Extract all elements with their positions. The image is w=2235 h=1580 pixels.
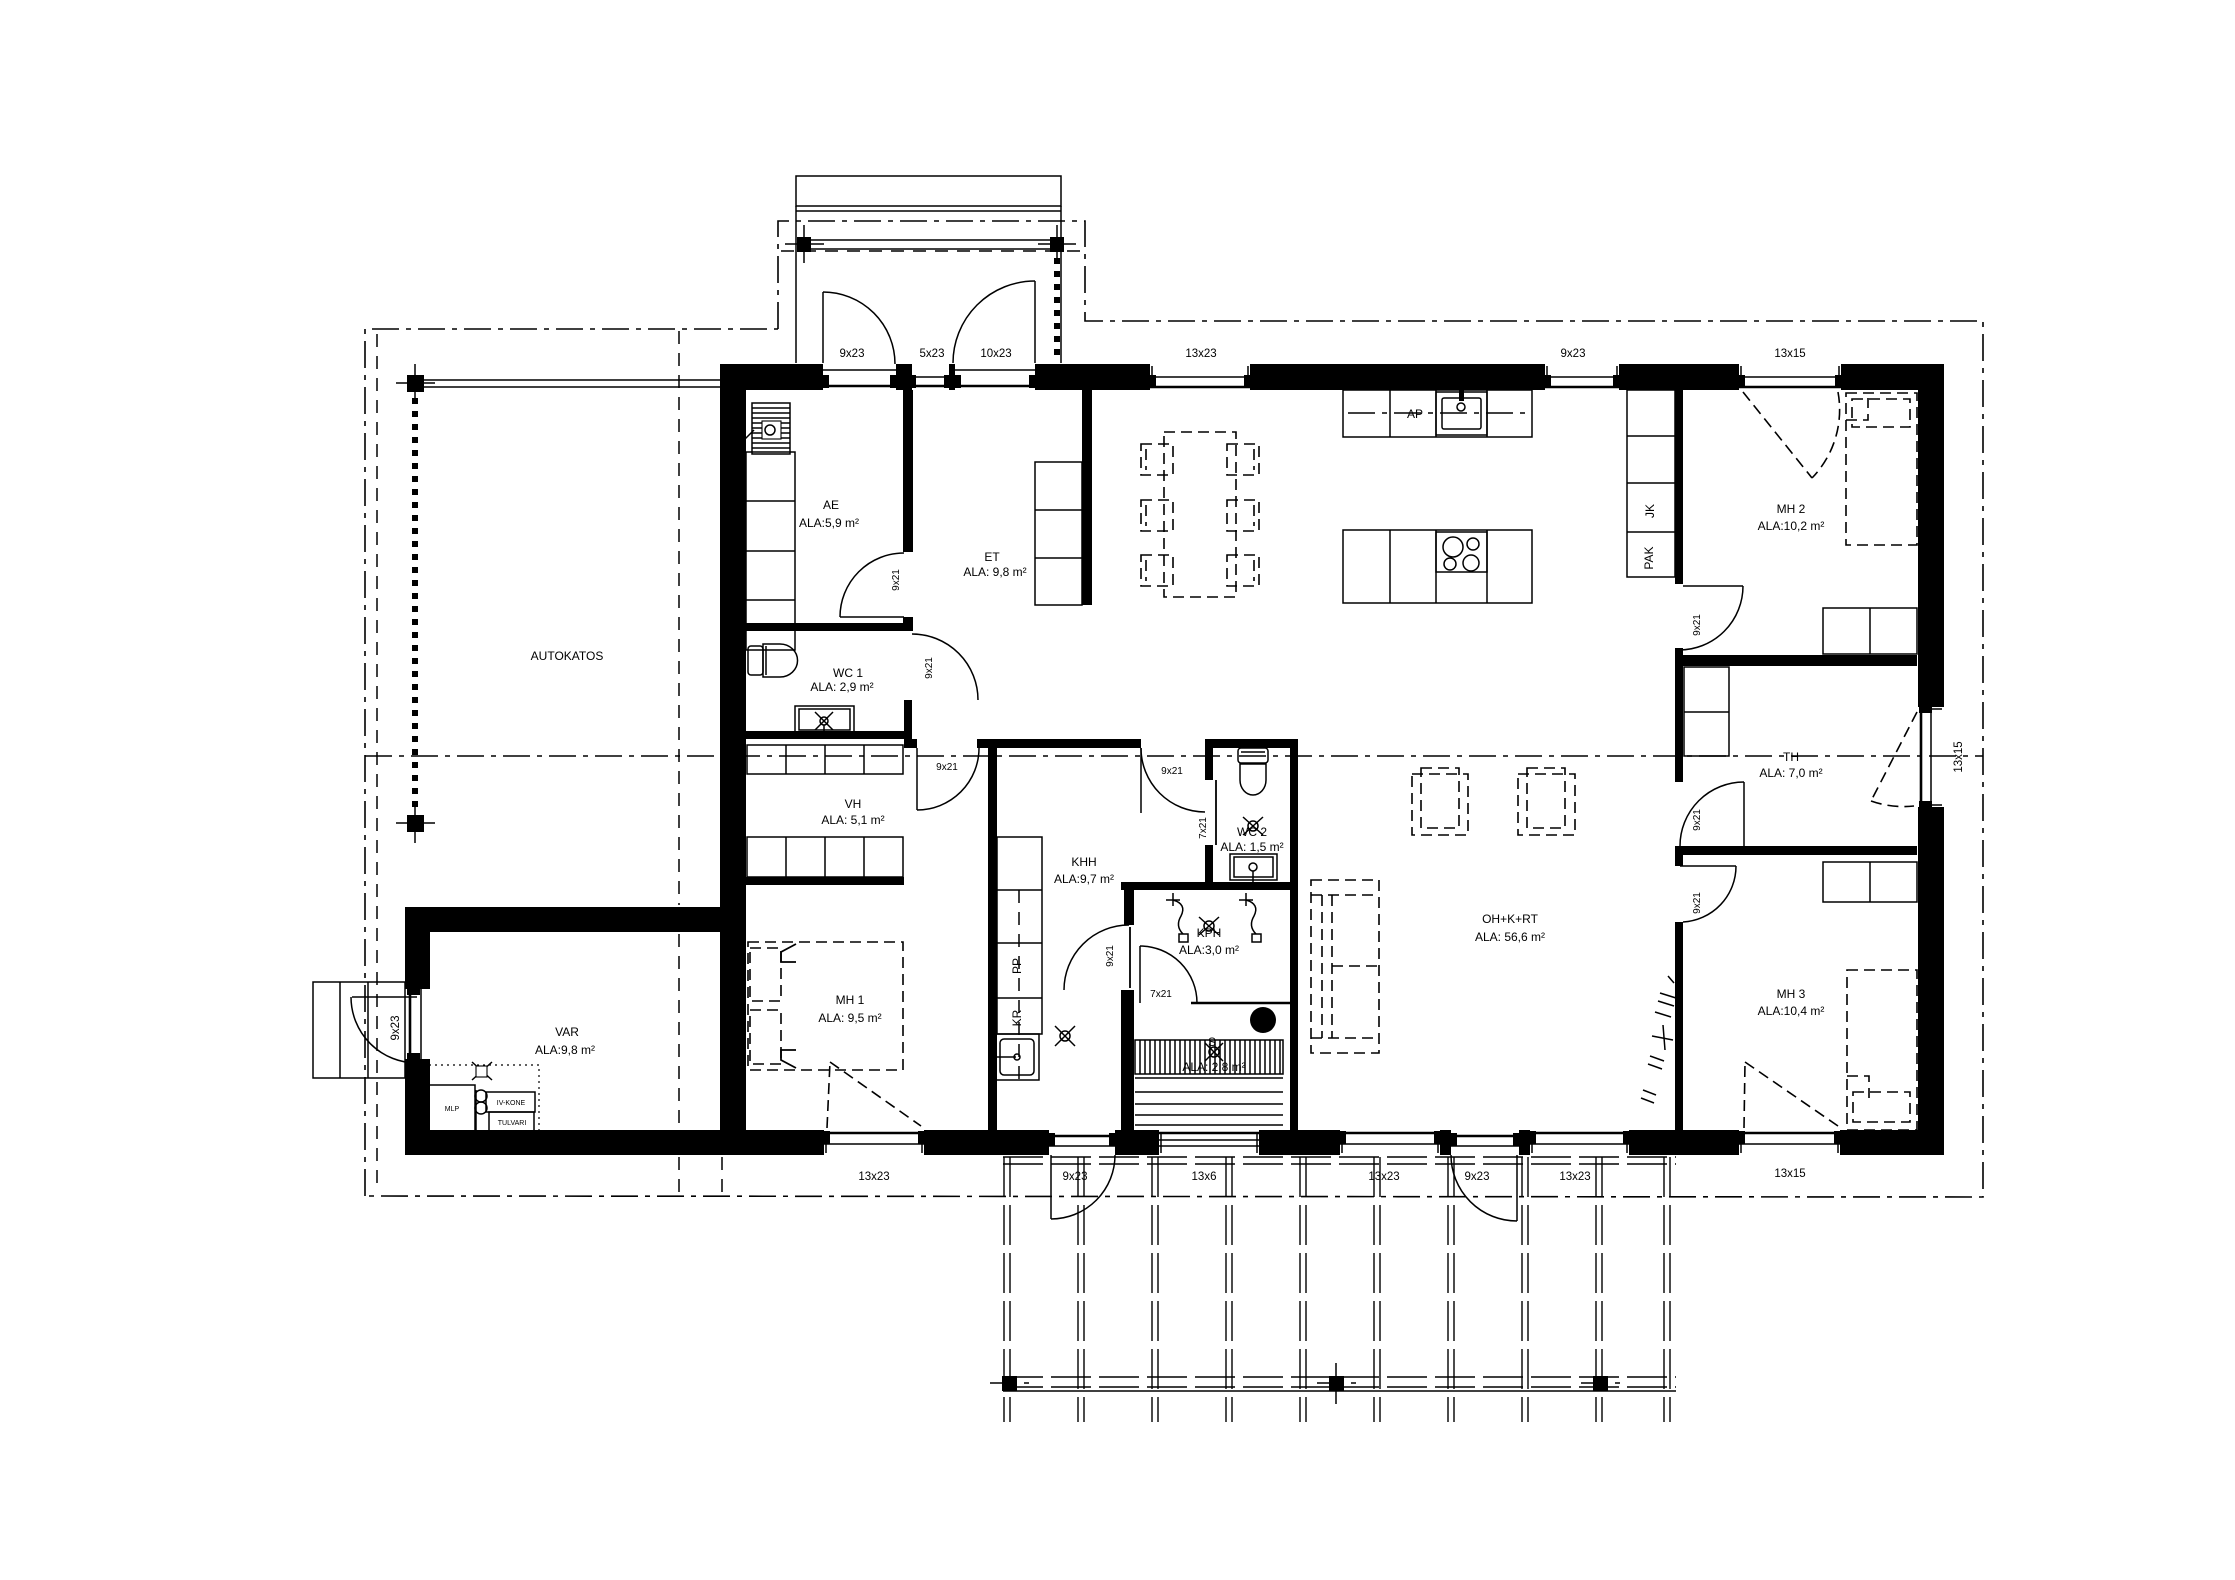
svg-text:IV-KONE: IV-KONE	[497, 1100, 526, 1107]
svg-text:MH 3: MH 3	[1777, 987, 1806, 1001]
svg-text:TH: TH	[1783, 750, 1799, 764]
svg-text:10x23: 10x23	[980, 348, 1011, 360]
svg-text:13x23: 13x23	[1185, 348, 1216, 360]
svg-text:WC 2: WC 2	[1237, 825, 1267, 839]
svg-text:ALA: 9,5 m²: ALA: 9,5 m²	[818, 1011, 881, 1025]
svg-text:AP: AP	[1407, 407, 1423, 421]
svg-text:JK: JK	[1643, 504, 1657, 518]
svg-text:ALA: 7,0 m²: ALA: 7,0 m²	[1759, 766, 1822, 780]
svg-text:ALA: 1,5 m²: ALA: 1,5 m²	[1220, 840, 1283, 854]
svg-text:PAK: PAK	[1642, 546, 1656, 569]
svg-text:9x21: 9x21	[1692, 809, 1703, 831]
svg-text:OH+K+RT: OH+K+RT	[1482, 912, 1538, 926]
svg-text:9x23: 9x23	[1063, 1171, 1088, 1183]
svg-text:KHH: KHH	[1071, 855, 1096, 869]
svg-text:ALA: 56,6 m²: ALA: 56,6 m²	[1475, 930, 1545, 944]
svg-text:9x23: 9x23	[1561, 348, 1586, 360]
svg-text:9x21: 9x21	[1692, 614, 1703, 636]
svg-text:13x15: 13x15	[1774, 1168, 1805, 1180]
svg-text:VAR: VAR	[555, 1025, 579, 1039]
svg-text:MLP: MLP	[445, 1106, 460, 1113]
svg-text:VH: VH	[845, 797, 862, 811]
svg-text:13x6: 13x6	[1192, 1171, 1217, 1183]
svg-text:9x21: 9x21	[936, 762, 958, 773]
svg-text:7x21: 7x21	[1198, 817, 1209, 839]
svg-text:9x21: 9x21	[924, 657, 935, 679]
svg-text:ALA:10,2 m²: ALA:10,2 m²	[1758, 519, 1825, 533]
svg-text:ALA: 2,8 m²: ALA: 2,8 m²	[1182, 1060, 1245, 1074]
svg-text:AUTOKATOS: AUTOKATOS	[531, 649, 604, 663]
svg-text:13x15: 13x15	[1774, 348, 1805, 360]
svg-text:7x21: 7x21	[1150, 989, 1172, 1000]
svg-text:ALA: 2,9 m²: ALA: 2,9 m²	[810, 680, 873, 694]
svg-text:9x21: 9x21	[1105, 945, 1116, 967]
svg-text:AE: AE	[823, 498, 839, 512]
svg-text:9x23: 9x23	[840, 348, 865, 360]
svg-text:PP: PP	[1010, 958, 1024, 974]
svg-text:9x23: 9x23	[1465, 1171, 1490, 1183]
svg-text:13x23: 13x23	[1559, 1171, 1590, 1183]
svg-text:ALA: 5,1 m²: ALA: 5,1 m²	[821, 813, 884, 827]
svg-text:5x23: 5x23	[920, 348, 945, 360]
svg-text:KR: KR	[1010, 1009, 1024, 1026]
svg-text:KPH: KPH	[1197, 926, 1222, 940]
svg-text:13x23: 13x23	[1368, 1171, 1399, 1183]
svg-text:ALA:9,8 m²: ALA:9,8 m²	[535, 1043, 595, 1057]
svg-text:9x23: 9x23	[390, 1016, 402, 1041]
svg-text:MH 1: MH 1	[836, 993, 865, 1007]
svg-text:MH 2: MH 2	[1777, 502, 1806, 516]
svg-text:ALA:9,7 m²: ALA:9,7 m²	[1054, 872, 1114, 886]
svg-text:13x23: 13x23	[858, 1171, 889, 1183]
svg-text:9x21: 9x21	[1692, 892, 1703, 914]
svg-text:ALA: 9,8 m²: ALA: 9,8 m²	[963, 565, 1026, 579]
svg-text:S: S	[1208, 1035, 1216, 1049]
svg-text:ALA:5,9 m²: ALA:5,9 m²	[799, 516, 859, 530]
svg-text:ET: ET	[984, 550, 1000, 564]
svg-text:9x21: 9x21	[891, 569, 902, 591]
svg-text:ALA:3,0 m²: ALA:3,0 m²	[1179, 943, 1239, 957]
svg-text:9x21: 9x21	[1161, 766, 1183, 777]
svg-text:ALA:10,4 m²: ALA:10,4 m²	[1758, 1004, 1825, 1018]
svg-text:13x15: 13x15	[1953, 741, 1965, 772]
svg-text:WC 1: WC 1	[833, 666, 863, 680]
svg-text:TULVARI: TULVARI	[498, 1120, 527, 1127]
